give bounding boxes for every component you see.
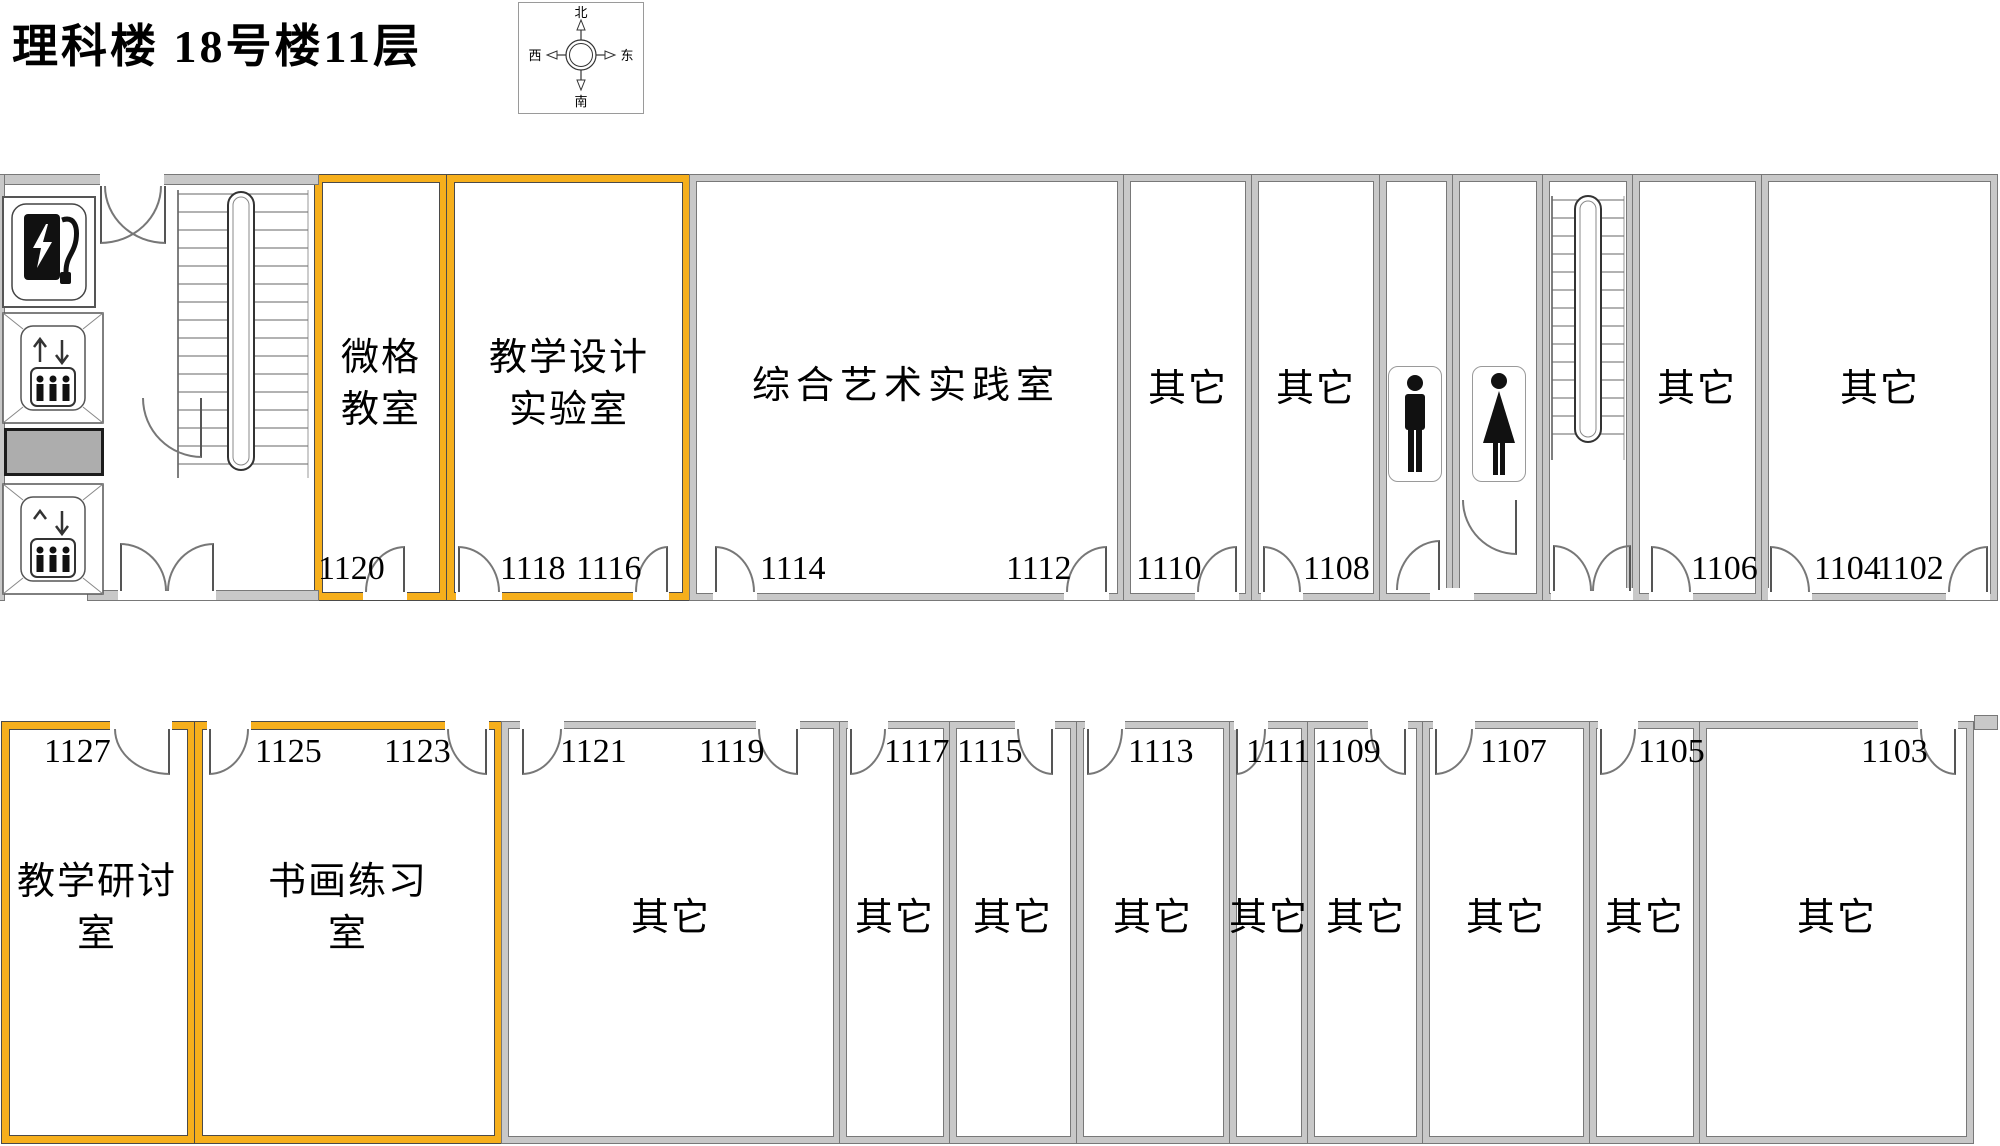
female-figure-icon — [1473, 367, 1525, 481]
staircase-icon — [1549, 192, 1627, 464]
room-label: 教学设计实验室 — [489, 332, 649, 436]
wall — [1975, 716, 1997, 729]
room-number: 1114 — [760, 551, 825, 587]
room-number: 1106 — [1691, 551, 1758, 587]
room-label: 其它 — [1657, 363, 1737, 415]
room-label: 其它 — [1840, 363, 1920, 415]
room-number: 1111 — [1246, 734, 1310, 770]
elevator-icon — [2, 312, 104, 424]
room-number: 1117 — [884, 734, 949, 770]
mens-room-sign — [1388, 366, 1442, 482]
room-number: 1112 — [1006, 551, 1071, 587]
compass: 北 南 西 东 — [518, 2, 644, 114]
room-number: 1110 — [1136, 551, 1201, 587]
room-number: 1123 — [384, 734, 451, 770]
compass-north-label: 北 — [574, 5, 587, 20]
room-number: 1116 — [576, 551, 641, 587]
room-label: 教学研讨室 — [17, 856, 177, 960]
room-number: 1127 — [44, 734, 111, 770]
room-label: 其它 — [1797, 892, 1877, 944]
compass-east-label: 东 — [620, 48, 633, 63]
room-number: 1109 — [1314, 734, 1381, 770]
room-number: 1105 — [1638, 734, 1705, 770]
room-number: 1118 — [500, 551, 565, 587]
room-number: 1108 — [1303, 551, 1370, 587]
door-arc — [167, 543, 214, 591]
womens-room-sign — [1472, 366, 1526, 482]
room-number: 1125 — [255, 734, 322, 770]
room-number: 1115 — [957, 734, 1022, 770]
room-label: 其它 — [1466, 892, 1546, 944]
page-title: 理科楼 18号楼11层 — [12, 10, 422, 76]
charging-station-icon — [2, 196, 96, 308]
room-label: 其它 — [1148, 363, 1228, 415]
room-label: 综合艺术实践室 — [752, 360, 1060, 412]
male-figure-icon — [1389, 367, 1441, 481]
room-label: 其它 — [1113, 892, 1193, 944]
compass-south-label: 南 — [574, 94, 587, 109]
room-label: 微格教室 — [341, 332, 421, 436]
door-arc — [120, 543, 167, 591]
room-label: 其它 — [973, 892, 1053, 944]
elevator-icon — [2, 482, 104, 596]
room-number: 1103 — [1861, 734, 1928, 770]
door-arc — [142, 398, 202, 458]
room-label: 其它 — [1276, 363, 1356, 415]
room-number: 1120 — [318, 551, 385, 587]
room-label: 其它 — [1326, 892, 1406, 944]
room-number: 1104 — [1814, 551, 1881, 587]
room-number: 1121 — [560, 734, 627, 770]
floor-plan: 理科楼 18号楼11层 北 南 西 东 — [0, 0, 2000, 1146]
room-label: 其它 — [1229, 892, 1309, 944]
room-number: 1107 — [1480, 734, 1547, 770]
room-number: 1119 — [699, 734, 764, 770]
room-label: 其它 — [1605, 892, 1685, 944]
door-opening — [100, 173, 164, 185]
room-label: 书画练习室 — [268, 856, 428, 960]
compass-rose-icon: 北 南 西 东 — [519, 3, 643, 113]
elevator-shaft — [4, 428, 104, 476]
room-number: 1102 — [1877, 551, 1944, 587]
room-number: 1113 — [1128, 734, 1193, 770]
room-label: 其它 — [631, 892, 711, 944]
compass-west-label: 西 — [528, 48, 541, 63]
room-label: 其它 — [855, 892, 935, 944]
